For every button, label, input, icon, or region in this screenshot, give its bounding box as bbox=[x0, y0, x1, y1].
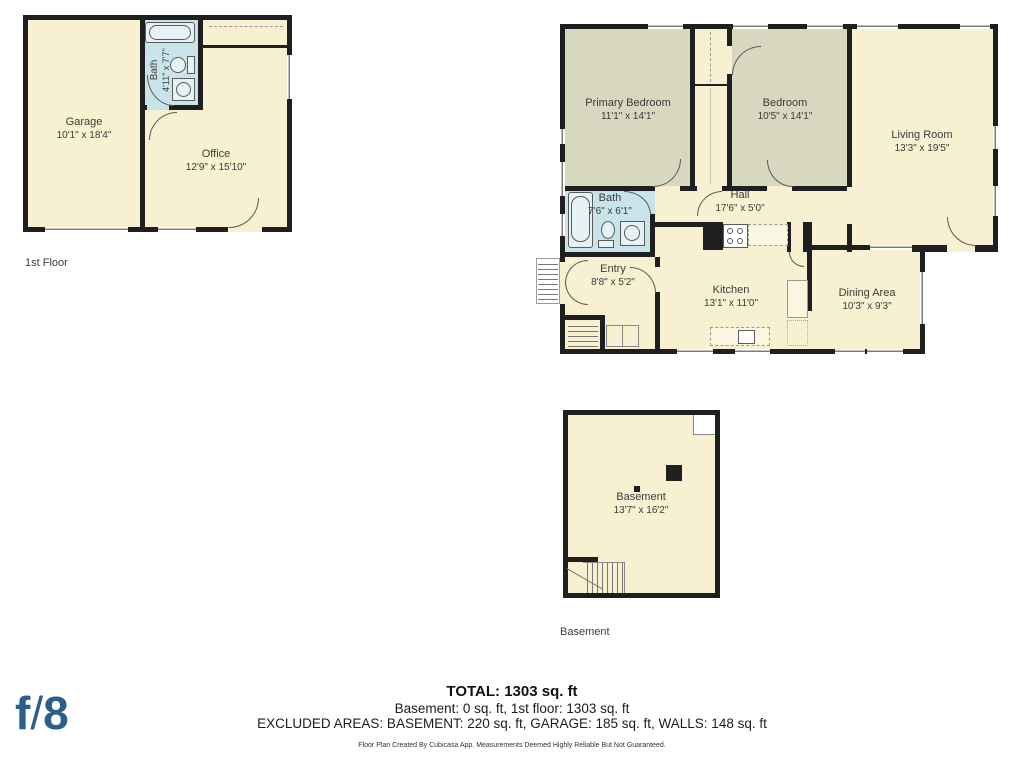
window bbox=[158, 227, 196, 232]
room-name: Bedroom bbox=[735, 96, 835, 110]
room-label-office: Office 12'9" x 15'10" bbox=[166, 147, 266, 174]
total-area-line: TOTAL: 1303 sq. ft bbox=[0, 683, 1024, 700]
closet-rod bbox=[710, 32, 711, 82]
wall bbox=[727, 74, 732, 186]
wall bbox=[812, 245, 870, 250]
counter-dotted bbox=[787, 320, 808, 346]
window bbox=[835, 349, 865, 354]
room-label-hall: Hall 17'6" x 5'0" bbox=[690, 188, 790, 215]
wall bbox=[650, 214, 655, 257]
room-label-dining-area: Dining Area 10'3" x 9'3" bbox=[817, 286, 917, 313]
window bbox=[993, 126, 998, 149]
room-name: Dining Area bbox=[817, 286, 917, 300]
wall bbox=[727, 29, 732, 46]
room-dims: 12'9" x 15'10" bbox=[166, 161, 266, 174]
wall bbox=[169, 105, 203, 110]
window bbox=[677, 349, 713, 354]
wall bbox=[560, 252, 655, 257]
window bbox=[735, 349, 770, 354]
wall bbox=[715, 410, 720, 598]
room-label-kitchen: Kitchen 13'1" x 11'0" bbox=[681, 283, 781, 310]
sink-basin bbox=[176, 82, 191, 97]
support-post bbox=[666, 465, 682, 481]
wall bbox=[198, 20, 203, 110]
window bbox=[807, 24, 843, 29]
kitchen-sink-icon bbox=[738, 330, 755, 344]
floor-areas-line: Basement: 0 sq. ft, 1st floor: 1303 sq. … bbox=[0, 701, 1024, 716]
window bbox=[648, 24, 683, 29]
wall bbox=[792, 186, 847, 191]
room-dims: 13'3" x 19'5" bbox=[872, 142, 972, 155]
basement-caption: Basement bbox=[560, 626, 610, 638]
closet-rod bbox=[209, 26, 283, 28]
wall bbox=[203, 45, 287, 48]
wall bbox=[847, 29, 852, 187]
room-label-bedroom: Bedroom 10'5" x 14'1" bbox=[735, 96, 835, 123]
room-dims: 13'7" x 16'2" bbox=[591, 504, 691, 517]
basement-plan: Basement 13'7" x 16'2" bbox=[563, 410, 720, 598]
wall bbox=[560, 24, 998, 29]
wall bbox=[565, 315, 605, 320]
counter bbox=[787, 280, 808, 318]
room-name: Entry bbox=[568, 262, 658, 276]
wall bbox=[695, 84, 727, 86]
room-label-bath: Bath 7'6" x 6'1" bbox=[570, 191, 650, 218]
room-dims: 10'5" x 14'1" bbox=[735, 110, 835, 123]
wall bbox=[912, 245, 947, 252]
room-name: Basement bbox=[591, 490, 691, 504]
room-dims: 17'6" x 5'0" bbox=[690, 202, 790, 215]
room-dims: 10'1" x 18'4" bbox=[34, 129, 134, 142]
room-dims: 4'11" x 7'7" bbox=[161, 37, 173, 103]
room-label-entry: Entry 8'8" x 5'2" bbox=[568, 262, 658, 289]
logo-slash: / bbox=[29, 687, 43, 739]
wall bbox=[600, 315, 605, 349]
opening bbox=[870, 245, 912, 250]
stairs bbox=[583, 562, 625, 593]
room-dims: 8'8" x 5'2" bbox=[568, 276, 658, 289]
window bbox=[560, 214, 565, 236]
room-label-garage: Garage 10'1" x 18'4" bbox=[34, 115, 134, 142]
room-dims: 7'6" x 6'1" bbox=[570, 205, 650, 218]
room-label-bath: Bath 4'11" x 7'7" bbox=[148, 37, 178, 103]
closet-divider bbox=[710, 88, 711, 184]
toilet-icon bbox=[187, 56, 195, 74]
counter bbox=[748, 224, 788, 246]
porch-treads bbox=[538, 260, 558, 302]
room-name: Office bbox=[166, 147, 266, 161]
window bbox=[560, 162, 565, 196]
wall bbox=[140, 105, 147, 110]
sink-basin bbox=[624, 225, 640, 241]
wall bbox=[23, 15, 28, 232]
f8-logo: f/8 bbox=[15, 686, 68, 740]
fridge-icon bbox=[703, 222, 723, 250]
window bbox=[733, 24, 768, 29]
stove-icon bbox=[723, 224, 748, 248]
room-name: Garage bbox=[34, 115, 134, 129]
first-floor-caption: 1st Floor bbox=[25, 257, 68, 269]
logo-f: f bbox=[15, 687, 29, 739]
wall bbox=[655, 222, 703, 227]
credit-line: Floor Plan Created By Cubicasa App. Meas… bbox=[0, 742, 1024, 749]
room-name: Kitchen bbox=[681, 283, 781, 297]
window bbox=[920, 272, 925, 324]
wall bbox=[140, 20, 145, 227]
room-dims: 10'3" x 9'3" bbox=[817, 300, 917, 313]
storage-divider bbox=[622, 325, 623, 347]
burner bbox=[727, 228, 733, 234]
wall bbox=[560, 304, 565, 354]
toilet-bowl bbox=[601, 221, 615, 239]
wall bbox=[287, 15, 292, 232]
window bbox=[857, 24, 898, 29]
room-name: Hall bbox=[690, 188, 790, 202]
room-name: Living Room bbox=[872, 128, 972, 142]
first-floor-plan: Garage 10'1" x 18'4" Bath 4'11" x 7'7" O… bbox=[23, 15, 292, 232]
room-label-primary-bedroom: Primary Bedroom 11'1" x 14'1" bbox=[578, 96, 678, 123]
room-dims: 13'1" x 11'0" bbox=[681, 297, 781, 310]
burner bbox=[737, 238, 743, 244]
window bbox=[867, 349, 903, 354]
wall bbox=[975, 245, 998, 252]
room-label-living-room: Living Room 13'3" x 19'5" bbox=[872, 128, 972, 155]
corner-notch bbox=[693, 415, 715, 435]
room-dims: 11'1" x 14'1" bbox=[578, 110, 678, 123]
room-name: Primary Bedroom bbox=[578, 96, 678, 110]
burner bbox=[727, 238, 733, 244]
room-label-basement: Basement 13'7" x 16'2" bbox=[591, 490, 691, 517]
toilet-icon bbox=[598, 240, 614, 248]
wall bbox=[23, 15, 292, 20]
window bbox=[960, 24, 990, 29]
burner bbox=[737, 228, 743, 234]
garage-door-window bbox=[45, 227, 128, 232]
room-name: Bath bbox=[148, 37, 161, 103]
wall bbox=[690, 29, 695, 186]
wall bbox=[847, 224, 852, 252]
excluded-areas-line: EXCLUDED AREAS: BASEMENT: 220 sq. ft, GA… bbox=[0, 716, 1024, 731]
window bbox=[287, 55, 292, 99]
logo-eight: 8 bbox=[43, 687, 68, 739]
porch-steps bbox=[536, 258, 560, 304]
window bbox=[560, 129, 565, 144]
door-opening bbox=[228, 227, 262, 232]
room-name: Bath bbox=[570, 191, 650, 205]
stairs bbox=[568, 322, 598, 348]
window bbox=[993, 186, 998, 216]
wall bbox=[655, 292, 660, 349]
main-floor-plan: Primary Bedroom 11'1" x 14'1" Bedroom 10… bbox=[560, 24, 998, 354]
wall bbox=[563, 593, 720, 598]
